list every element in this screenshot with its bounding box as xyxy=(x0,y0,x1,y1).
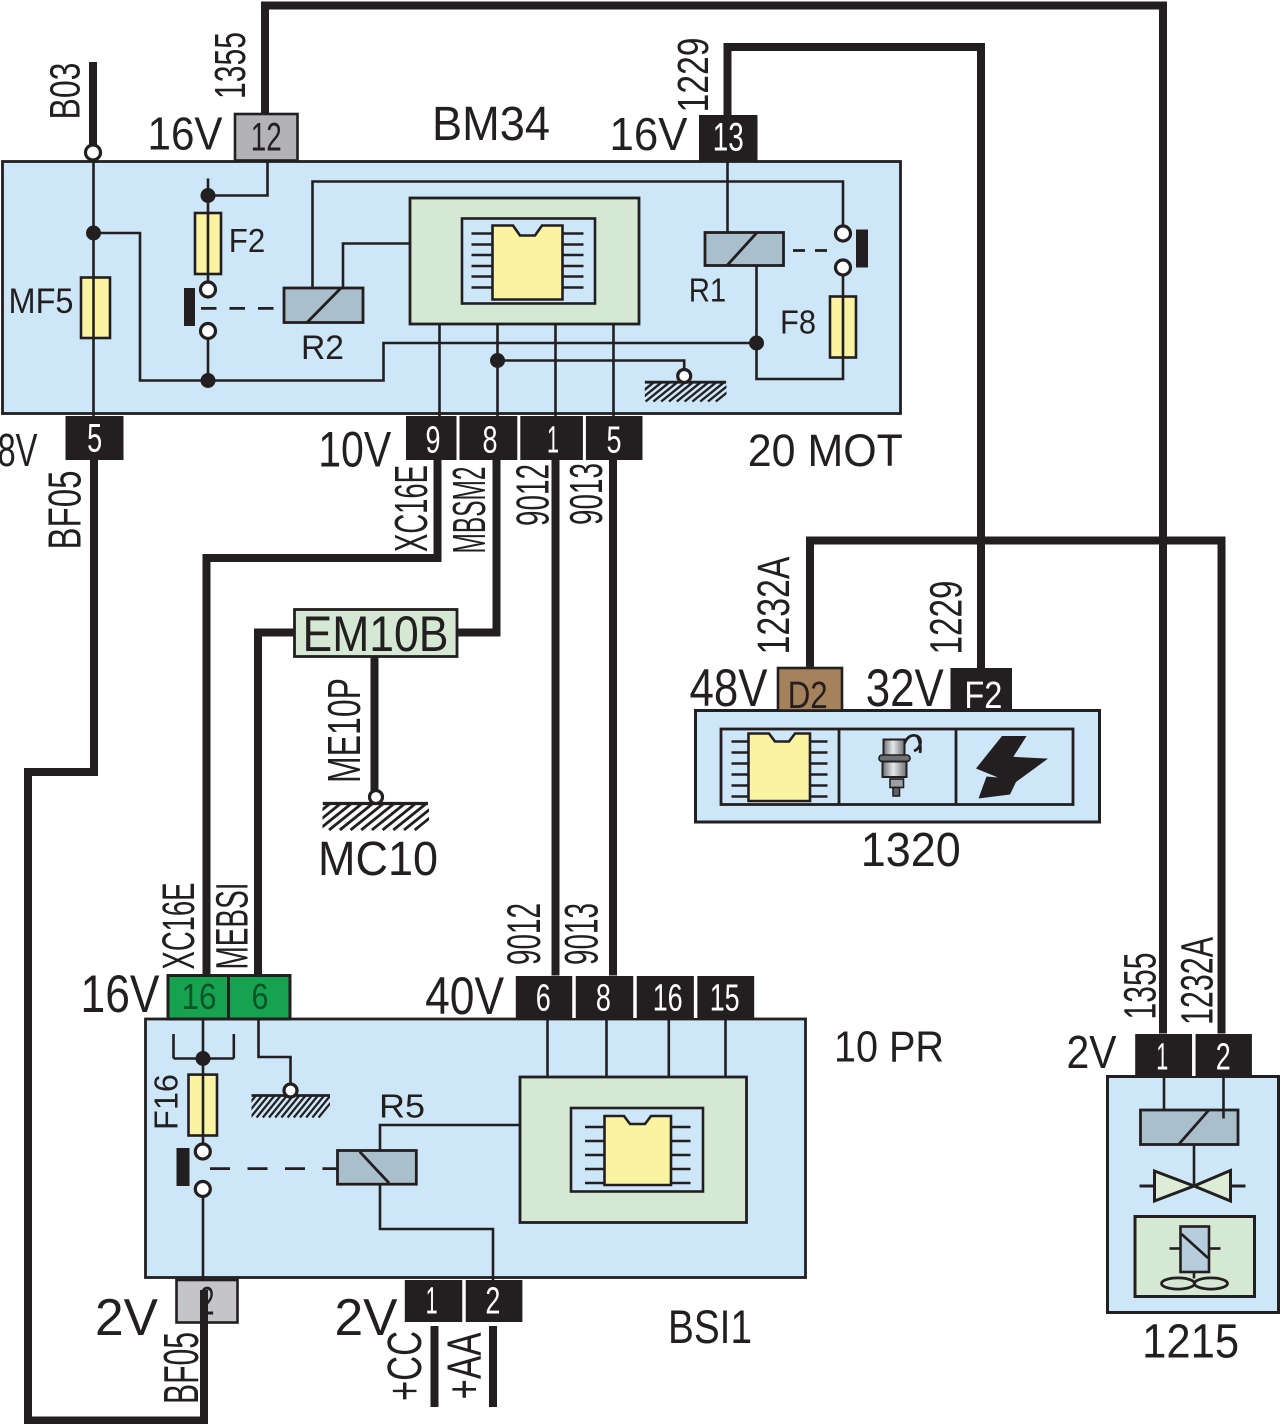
svg-text:5: 5 xyxy=(87,417,102,461)
svg-text:+AA: +AA xyxy=(439,1333,492,1400)
svg-text:F2: F2 xyxy=(229,222,266,259)
svg-text:9012: 9012 xyxy=(507,464,559,526)
svg-text:F8: F8 xyxy=(780,304,816,341)
svg-text:R1: R1 xyxy=(689,272,727,309)
svg-text:12: 12 xyxy=(251,116,282,160)
svg-text:15: 15 xyxy=(710,978,740,1020)
svg-text:16V: 16V xyxy=(610,108,688,160)
svg-text:R5: R5 xyxy=(379,1088,425,1125)
svg-text:1232A: 1232A xyxy=(748,557,799,655)
svg-text:BF05: BF05 xyxy=(39,471,91,550)
svg-text:16V: 16V xyxy=(148,108,223,160)
svg-text:1232A: 1232A xyxy=(1172,937,1223,1025)
svg-text:2V: 2V xyxy=(1067,1026,1117,1078)
svg-text:1229: 1229 xyxy=(669,38,718,113)
svg-text:+CC: +CC xyxy=(379,1331,432,1401)
svg-text:1355: 1355 xyxy=(1115,953,1166,1020)
svg-text:D2: D2 xyxy=(788,675,828,717)
svg-text:16V: 16V xyxy=(81,965,161,1024)
svg-text:BSI1: BSI1 xyxy=(668,1300,752,1353)
svg-text:MC10: MC10 xyxy=(318,833,438,886)
svg-text:MBSM2: MBSM2 xyxy=(443,467,495,554)
svg-text:8: 8 xyxy=(596,978,611,1020)
svg-text:32V: 32V xyxy=(866,659,945,718)
svg-text:20 MOT: 20 MOT xyxy=(748,425,903,476)
svg-text:F16: F16 xyxy=(148,1074,185,1130)
svg-text:13: 13 xyxy=(713,116,744,160)
svg-text:1: 1 xyxy=(547,420,559,462)
svg-text:1: 1 xyxy=(426,1281,438,1323)
svg-text:2V: 2V xyxy=(95,1289,158,1347)
svg-text:9: 9 xyxy=(426,420,441,462)
svg-text:6: 6 xyxy=(536,978,551,1020)
svg-text:48V: 48V xyxy=(690,659,769,718)
svg-text:8V: 8V xyxy=(0,424,38,476)
svg-text:2: 2 xyxy=(1216,1037,1231,1079)
svg-text:9012: 9012 xyxy=(497,903,550,965)
svg-text:F2: F2 xyxy=(964,675,1002,717)
svg-text:1355: 1355 xyxy=(206,32,255,99)
svg-text:XC16E: XC16E xyxy=(385,465,437,552)
svg-text:16: 16 xyxy=(653,978,683,1020)
svg-text:9013: 9013 xyxy=(560,463,612,525)
svg-text:ME10P: ME10P xyxy=(318,678,370,783)
svg-text:9013: 9013 xyxy=(555,903,608,965)
svg-text:BF05: BF05 xyxy=(155,1332,209,1404)
svg-text:40V: 40V xyxy=(425,967,505,1026)
svg-text:1229: 1229 xyxy=(921,581,972,655)
svg-text:6: 6 xyxy=(252,976,269,1017)
svg-text:5: 5 xyxy=(607,420,622,462)
svg-text:XC16E: XC16E xyxy=(153,883,204,970)
svg-text:10V: 10V xyxy=(318,422,392,478)
svg-text:1320: 1320 xyxy=(861,824,961,877)
svg-text:B03: B03 xyxy=(42,63,90,120)
svg-text:EM10B: EM10B xyxy=(303,606,449,662)
svg-text:R2: R2 xyxy=(301,329,344,367)
svg-text:1215: 1215 xyxy=(1142,1316,1239,1369)
svg-text:MF5: MF5 xyxy=(9,282,74,321)
svg-text:16: 16 xyxy=(182,976,217,1017)
svg-text:10 PR: 10 PR xyxy=(834,1023,944,1072)
svg-text:MEBSI: MEBSI xyxy=(207,883,258,970)
svg-text:BM34: BM34 xyxy=(432,98,550,151)
svg-text:8: 8 xyxy=(483,420,498,462)
svg-text:2: 2 xyxy=(485,1281,500,1323)
svg-text:1: 1 xyxy=(1156,1037,1168,1079)
